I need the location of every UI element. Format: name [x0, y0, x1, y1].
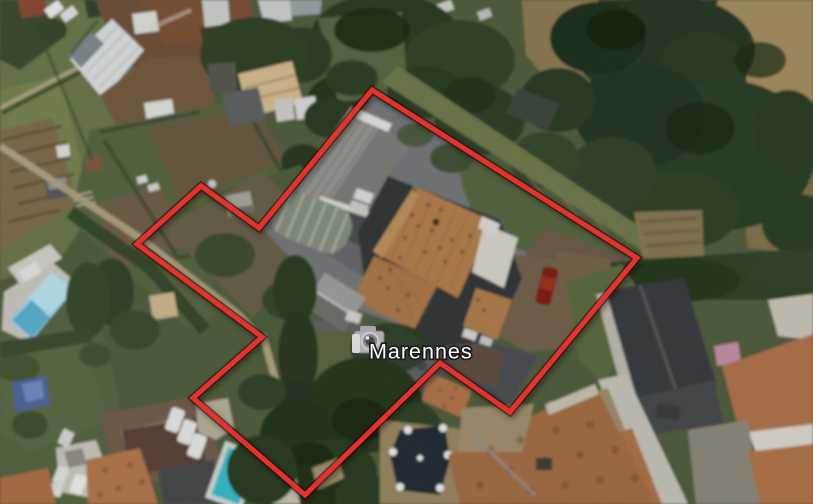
- svg-text:Marennes: Marennes: [369, 340, 473, 364]
